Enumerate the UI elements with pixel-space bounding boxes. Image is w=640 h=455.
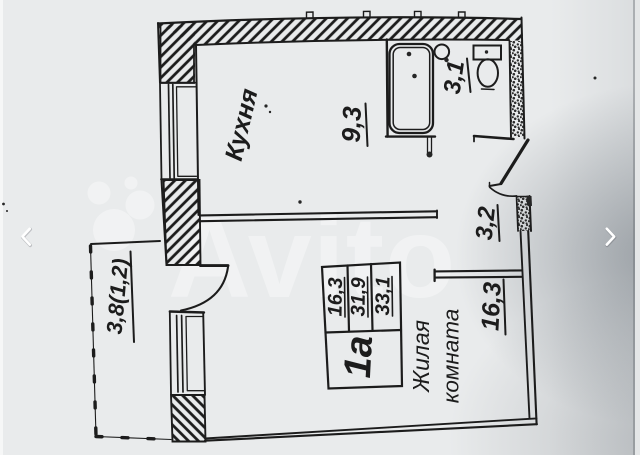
svg-text:Жилая: Жилая	[408, 320, 434, 393]
svg-text:16,3: 16,3	[476, 281, 507, 331]
svg-text:33,1: 33,1	[372, 276, 395, 315]
svg-text:3,2: 3,2	[471, 205, 501, 242]
svg-text:комната: комната	[438, 309, 463, 403]
svg-text:1а: 1а	[337, 335, 381, 379]
svg-text:16,3: 16,3	[324, 277, 347, 316]
svg-text:Кухня: Кухня	[220, 86, 264, 164]
svg-text:31,9: 31,9	[347, 276, 370, 316]
svg-text:3,8(1,2): 3,8(1,2)	[102, 257, 134, 335]
svg-text:3,1: 3,1	[439, 59, 470, 96]
svg-text:9,3: 9,3	[336, 105, 367, 143]
